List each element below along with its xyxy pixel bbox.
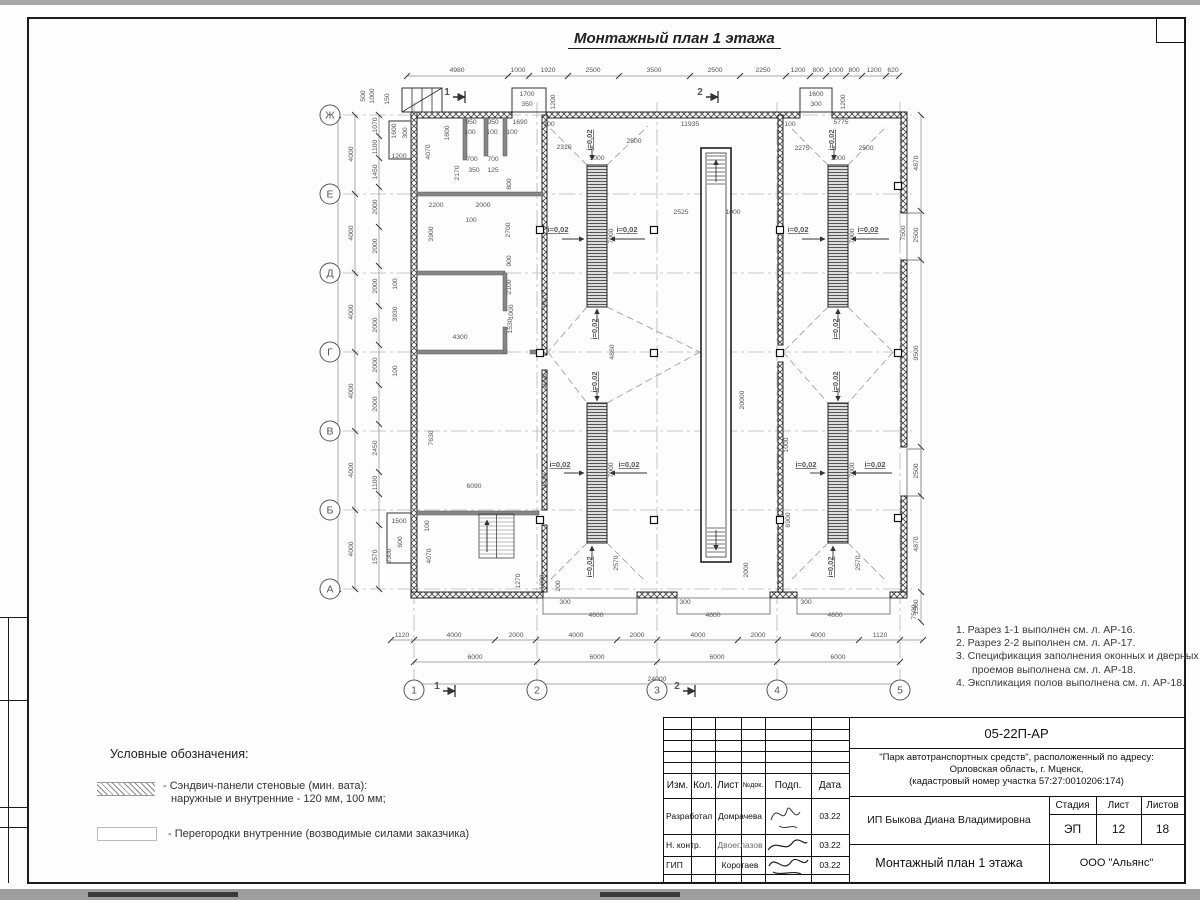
- col-header-kol: Кол.: [691, 773, 715, 798]
- sheet-title: Монтажный план 1 этажа: [849, 844, 1049, 882]
- dimension-label: 7000: [608, 462, 615, 477]
- dimension-label: 4870: [913, 536, 920, 551]
- dimension-label: 100: [465, 217, 477, 224]
- col-header-podp: Подп.: [765, 773, 811, 798]
- signature-mark: [767, 800, 809, 832]
- dimension-label: 2000: [629, 632, 644, 639]
- slope-label: i=0,02: [616, 225, 637, 234]
- client-name: ИП Быкова Диана Владимировна: [849, 796, 1049, 844]
- slope-label: i=0,02: [826, 556, 835, 577]
- svg-text:Ж: Ж: [325, 110, 335, 122]
- dimension-label: 1120: [873, 632, 888, 639]
- dimension-label: 1600: [391, 123, 398, 138]
- dimension-label: 500: [360, 90, 367, 102]
- dimension-label: 4600: [588, 612, 603, 619]
- row-date: 03.22: [811, 798, 849, 834]
- project-name: "Парк автотранспортных средств", располо…: [851, 748, 1182, 800]
- sheet-label: Лист: [1096, 796, 1141, 814]
- project-line: Орловская область, г. Мценск,: [851, 764, 1182, 776]
- section-mark: 2: [674, 681, 680, 692]
- inspection-pit: [828, 165, 848, 307]
- dimension-label: 1100: [372, 475, 379, 490]
- dimension-label: 4860: [609, 344, 616, 359]
- dimension-label: 1100: [372, 139, 379, 154]
- slope-label: i=0,02: [864, 460, 885, 469]
- company-name: ООО "Альянс": [1049, 844, 1184, 882]
- doc-code: 05-22П-АР: [849, 718, 1184, 748]
- col-header-data: Дата: [811, 773, 849, 798]
- sheets-label: Листов: [1141, 796, 1184, 814]
- dimension-label: 100: [464, 129, 476, 136]
- dimension-label: 6000: [589, 654, 604, 661]
- stage-label: Стадия: [1049, 796, 1096, 814]
- slope-label: i=0,02: [549, 460, 570, 469]
- slope-label: i=0,02: [590, 318, 599, 339]
- dimension-label: 2500: [626, 138, 641, 145]
- column: [895, 350, 902, 357]
- row-role: Разработал: [666, 798, 715, 834]
- dimension-label: 4600: [705, 612, 720, 619]
- dimension-label: 300: [810, 101, 822, 108]
- legend-swatch-sandwich-panel: [97, 782, 155, 796]
- svg-text:Г: Г: [327, 347, 333, 359]
- slope-label: i=0,02: [827, 129, 836, 150]
- stage-value: ЭП: [1049, 814, 1096, 844]
- column: [537, 350, 544, 357]
- dimension-label: 1800: [444, 125, 451, 140]
- dimension-label: 1000: [830, 155, 845, 162]
- notes-block: 1. Разрез 1-1 выполнен см. л. АР-16. 2. …: [956, 624, 1199, 690]
- row-role: ГИП: [666, 856, 715, 874]
- legend-item-partition: - Перегородки внутренние (возводимые сил…: [168, 828, 469, 841]
- dimension-label: 1570: [372, 549, 379, 564]
- dimension-label: 1200: [391, 153, 406, 160]
- dimension-label: 2000: [508, 632, 523, 639]
- dimension-label: 950: [465, 119, 477, 126]
- svg-text:3: 3: [654, 685, 660, 697]
- svg-text:5: 5: [897, 685, 903, 697]
- project-line: "Парк автотранспортных средств", располо…: [851, 752, 1182, 764]
- dimension-label: 6000: [830, 654, 845, 661]
- project-line: (кадастровый номер участка 57:27:0010206…: [851, 776, 1182, 788]
- dimension-label: 6900: [785, 512, 792, 527]
- column: [537, 517, 544, 524]
- dimension-label: 2450: [372, 440, 379, 455]
- column: [651, 517, 658, 524]
- dimension-label: 6000: [467, 654, 482, 661]
- column: [651, 350, 658, 357]
- dimension-label: 7000: [849, 462, 856, 477]
- col-header-izm: Изм.: [664, 773, 691, 798]
- dimension-label: 7000: [608, 228, 615, 243]
- dimension-label: 2500: [913, 463, 920, 478]
- drawing-sheet: Монтажный план 1 этажа 49801000192025003…: [0, 0, 1200, 900]
- dimension-label: 7000: [849, 228, 856, 243]
- dimension-label: 2500: [707, 67, 722, 74]
- dimension-label: 2500: [858, 145, 873, 152]
- dimension-label: 1200: [550, 94, 557, 109]
- dimension-label: 100: [486, 129, 498, 136]
- dimension-label: 300: [402, 127, 409, 139]
- dimension-label: 1000: [508, 304, 515, 319]
- dimension-label: 125: [487, 167, 499, 174]
- row-name: Домрачева: [715, 798, 765, 834]
- dimension-label: 9500: [913, 345, 920, 360]
- dimension-label: 700: [466, 156, 478, 163]
- column: [777, 227, 784, 234]
- signature-mark: [765, 836, 811, 878]
- dimension-label: 1200: [790, 67, 805, 74]
- dimension-label: 2200: [428, 202, 443, 209]
- dimension-label: 1000: [541, 373, 548, 388]
- dimension-label: 4000: [568, 632, 583, 639]
- dimension-label: 2500: [585, 67, 600, 74]
- legend-item-sandwich-panel: - Сэндвич-панели стеновые (мин. вата): н…: [163, 780, 386, 805]
- dimension-label: 4300: [452, 334, 467, 341]
- dimension-label: 100: [506, 129, 518, 136]
- slope-label: i=0,02: [787, 225, 808, 234]
- dimension-label: 2170: [454, 165, 461, 180]
- dimension-label: 620: [887, 67, 899, 74]
- row-date: 03.22: [811, 856, 849, 874]
- dimension-label: 800: [812, 67, 824, 74]
- dimension-label: 1700: [519, 91, 534, 98]
- dimension-label: 2000: [372, 396, 379, 411]
- dimension-label: 2525: [673, 209, 688, 216]
- dimension-label: 1000: [725, 209, 740, 216]
- dimension-label: 1600: [808, 91, 823, 98]
- slope-label: i=0,02: [831, 371, 840, 392]
- dimension-label: 900: [506, 255, 513, 267]
- dimension-label: 100: [424, 520, 431, 532]
- legend-text-line: - Сэндвич-панели стеновые (мин. вата):: [163, 780, 386, 793]
- dimension-label: 2570: [613, 555, 620, 570]
- note-line: 2. Разрез 2-2 выполнен см. л. АР-17.: [956, 637, 1199, 650]
- svg-text:Е: Е: [326, 189, 333, 201]
- inspection-pit: [587, 403, 607, 543]
- section-mark: 1: [434, 681, 440, 692]
- dimension-label: 1270: [515, 573, 522, 588]
- dimension-label: 2570: [855, 555, 862, 570]
- svg-text:4: 4: [774, 685, 780, 697]
- dimension-label: 200: [555, 580, 562, 592]
- dimension-label: 3500: [646, 67, 661, 74]
- dimension-label: 1000: [828, 67, 843, 74]
- dimension-label: 700: [487, 156, 499, 163]
- dimension-label: 100: [392, 278, 399, 290]
- dimension-label: 2000: [372, 278, 379, 293]
- inspection-pit: [587, 165, 607, 307]
- dimension-label: 100: [392, 365, 399, 377]
- dimension-label: 1200: [866, 67, 881, 74]
- dimension-label: 1530: [507, 318, 514, 333]
- dimension-label: 4070: [425, 144, 432, 159]
- dimension-label: 3900: [428, 226, 435, 241]
- dimension-label: 2000: [372, 357, 379, 372]
- note-line: проемов выполнена см. л. АР-18.: [956, 664, 1199, 677]
- dimension-label: 20000: [739, 390, 746, 409]
- dimension-label: 4000: [348, 225, 355, 240]
- dimension-label: 7500: [911, 604, 918, 619]
- dimension-label: 2100: [506, 279, 513, 294]
- col-header-ndok: №док.: [741, 773, 765, 798]
- column: [777, 350, 784, 357]
- dimension-label: 800: [506, 178, 513, 190]
- dimension-label: 2310: [556, 144, 571, 151]
- column: [651, 227, 658, 234]
- slope-label: i=0,02: [585, 556, 594, 577]
- dimension-label: 9670: [541, 292, 548, 307]
- dimension-label: 1450: [372, 164, 379, 179]
- section-mark: 1: [444, 87, 450, 98]
- slope-label: i=0,02: [547, 225, 568, 234]
- svg-text:В: В: [326, 426, 333, 438]
- dimension-label: 2275: [794, 145, 809, 152]
- dimension-label: 600: [397, 536, 404, 548]
- slope-label: i=0,02: [585, 129, 594, 150]
- dimension-label: 6000: [709, 654, 724, 661]
- dimension-label: 4000: [446, 632, 461, 639]
- slope-label: i=0,02: [831, 318, 840, 339]
- dimension-label: 3930: [392, 306, 399, 321]
- column: [895, 183, 902, 190]
- dimension-label: 11935: [681, 121, 700, 128]
- dimension-label: 1690: [512, 119, 527, 126]
- note-line: 1. Разрез 1-1 выполнен см. л. АР-16.: [956, 624, 1199, 637]
- legend-heading: Условные обозначения:: [110, 745, 249, 763]
- title-block: Изм. Кол. Лист №док. Подп. Дата Разработ…: [663, 717, 1185, 883]
- row-date: 03.22: [811, 834, 849, 856]
- note-line: 3. Спецификация заполнения оконных и две…: [956, 650, 1199, 663]
- sheet-number: 12: [1096, 814, 1141, 844]
- dimension-label: 350: [521, 101, 533, 108]
- dimension-label: 4000: [690, 632, 705, 639]
- dimension-label: 5775: [833, 119, 848, 126]
- row-role: Н. контр.: [666, 834, 715, 856]
- column: [777, 517, 784, 524]
- legend-swatch-partition: [97, 827, 157, 841]
- dimension-label: 1920: [540, 67, 555, 74]
- dimension-label: 1000: [783, 437, 790, 452]
- dimension-label: 2000: [372, 199, 379, 214]
- svg-text:А: А: [326, 584, 333, 596]
- dimension-label: 7500: [900, 225, 907, 240]
- dimension-label: 1120: [395, 632, 410, 639]
- dimension-label: 4870: [913, 155, 920, 170]
- dimension-label: 4600: [827, 612, 842, 619]
- dimension-label: 300: [679, 599, 691, 606]
- dimension-label: 2300: [386, 548, 393, 563]
- svg-text:Д: Д: [326, 268, 333, 280]
- dimension-label: 1200: [840, 94, 847, 109]
- svg-text:1: 1: [411, 685, 417, 697]
- dimension-label: 4000: [810, 632, 825, 639]
- dimension-label: 2000: [475, 202, 490, 209]
- legend-text-line: - Перегородки внутренние (возводимые сил…: [168, 828, 469, 841]
- dimension-label: 2000: [372, 317, 379, 332]
- dimension-label: 2000: [372, 238, 379, 253]
- svg-text:Б: Б: [327, 505, 334, 517]
- dimension-label: 7630: [428, 430, 435, 445]
- row-name: Коротаев: [715, 856, 765, 874]
- slope-label: i=0,02: [795, 460, 816, 469]
- dimension-label: 1070: [372, 117, 379, 132]
- dimension-label: 4000: [348, 146, 355, 161]
- dimension-label: 950: [487, 119, 499, 126]
- column: [895, 515, 902, 522]
- sheets-total: 18: [1141, 814, 1184, 844]
- column: [537, 227, 544, 234]
- dimension-label: 1500: [391, 518, 406, 525]
- dimension-label: 1000: [369, 88, 376, 103]
- section-mark: 2: [697, 87, 703, 98]
- slope-label: i=0,02: [590, 371, 599, 392]
- dimension-label: 800: [848, 67, 860, 74]
- dimension-label: 2000: [743, 562, 750, 577]
- dimension-label: 350: [468, 167, 480, 174]
- note-line: 4. Экспликация полов выполнена см. л. АР…: [956, 677, 1199, 690]
- row-name: Двоеглазов: [715, 834, 765, 856]
- svg-text:2: 2: [534, 685, 540, 697]
- dimension-label: 2500: [913, 227, 920, 242]
- dimension-label: 150: [384, 93, 391, 105]
- inspection-pit: [828, 403, 848, 543]
- dimension-label: 4070: [426, 548, 433, 563]
- dimension-label: 9130: [541, 473, 548, 488]
- dimension-label: 4980: [449, 67, 464, 74]
- dimension-label: 100: [784, 121, 796, 128]
- dimension-label: 4000: [348, 462, 355, 477]
- dimension-label: 6090: [466, 483, 481, 490]
- legend-text-line: наружные и внутренние - 120 мм, 100 мм;: [163, 793, 386, 806]
- col-header-list: Лист: [715, 773, 741, 798]
- dimension-label: 4000: [348, 541, 355, 556]
- dimension-label: 300: [800, 599, 812, 606]
- dimension-label: 4000: [348, 304, 355, 319]
- dimension-label: 2000: [750, 632, 765, 639]
- dimension-label: 4000: [348, 383, 355, 398]
- slope-label: i=0,02: [857, 225, 878, 234]
- dimension-label: 1000: [539, 574, 546, 589]
- dimension-label: 2250: [755, 67, 770, 74]
- dimension-label: 2700: [505, 222, 512, 237]
- slope-label: i=0,02: [618, 460, 639, 469]
- dimension-label: 1000: [510, 67, 525, 74]
- dimension-label: 300: [559, 599, 571, 606]
- dimension-label: 100: [543, 121, 555, 128]
